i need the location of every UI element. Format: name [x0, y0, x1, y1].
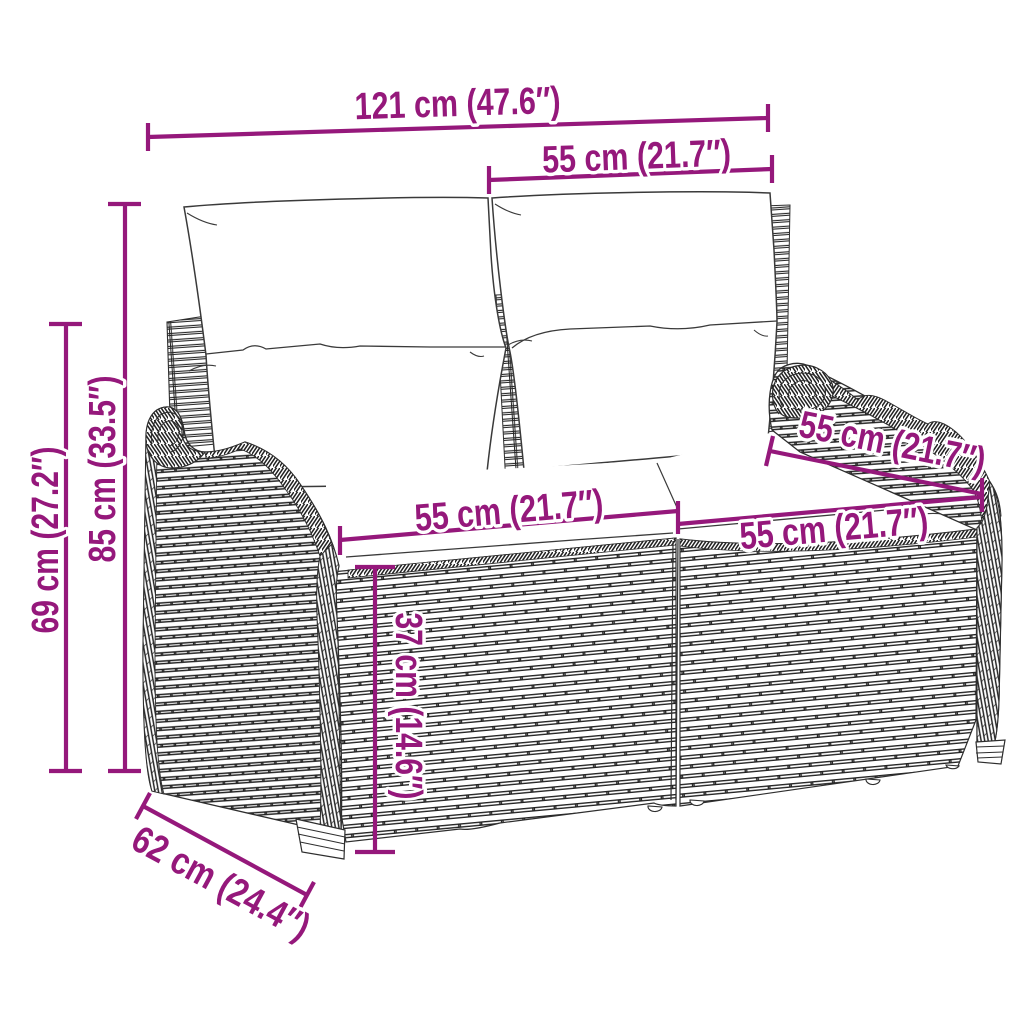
svg-text:69 cm (27.2″): 69 cm (27.2″): [25, 447, 67, 634]
svg-text:121 cm (47.6″): 121 cm (47.6″): [354, 80, 561, 128]
svg-text:37 cm (14.6″): 37 cm (14.6″): [387, 613, 429, 800]
svg-text:55 cm (21.7″): 55 cm (21.7″): [541, 132, 731, 181]
svg-text:85 cm (33.5″): 85 cm (33.5″): [82, 376, 124, 563]
